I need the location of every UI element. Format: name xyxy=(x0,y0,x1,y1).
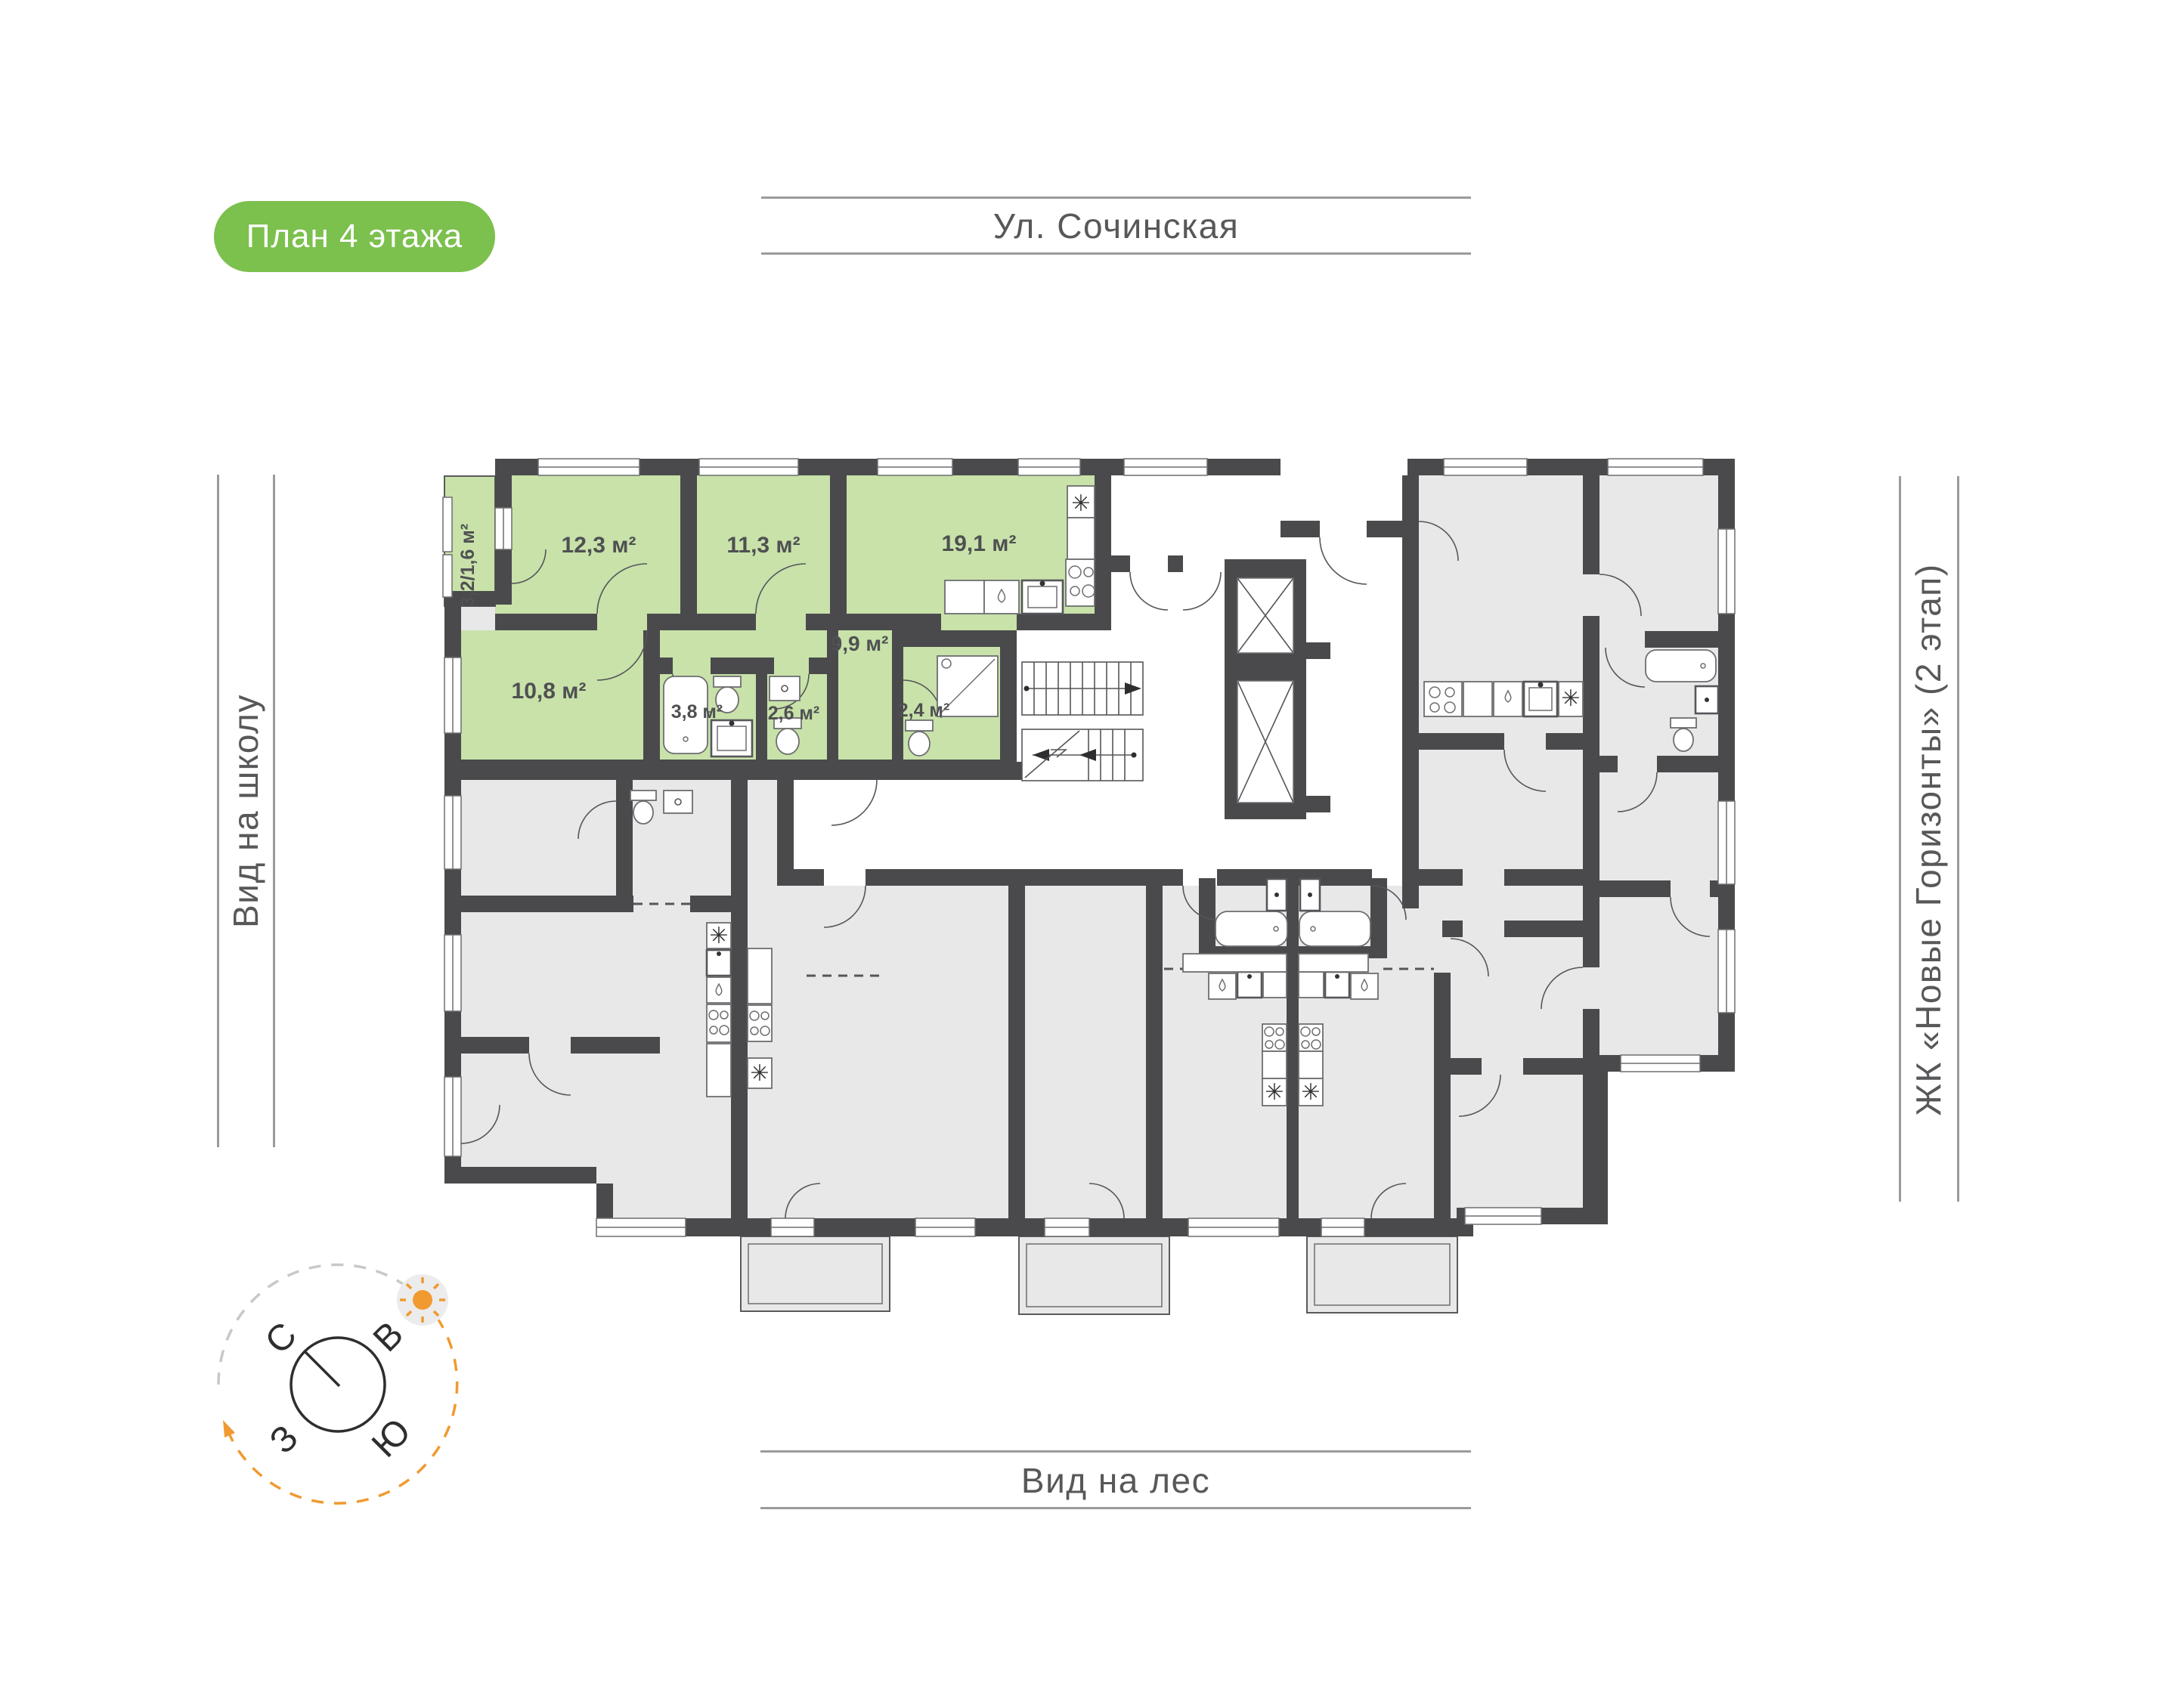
sun-path-arrow xyxy=(223,1420,235,1437)
bathtub-icon xyxy=(1215,911,1287,946)
balconies xyxy=(741,1236,1457,1314)
room-area-label-loggia: 3,2/1,6 м² xyxy=(457,524,478,607)
room-area-label-kitchen-living: 19,1 м² xyxy=(942,531,1017,556)
compass-south: Ю xyxy=(364,1411,419,1465)
elevators xyxy=(1237,578,1293,803)
sink-icon xyxy=(1300,879,1320,911)
kitchen-icons: ✳ xyxy=(1424,682,1583,716)
room-area-label-shower-room: 2,4 м² xyxy=(898,700,950,721)
bathtub-icon xyxy=(1646,650,1716,682)
compass: С В З Ю xyxy=(218,1264,457,1503)
svg-text:✳: ✳ xyxy=(709,923,728,949)
room-area-label-hallway: 9,9 м² xyxy=(831,632,889,655)
sink-icon xyxy=(711,720,752,757)
svg-text:✳: ✳ xyxy=(1561,685,1580,712)
room-area-label-bedroom-1: 12,3 м² xyxy=(562,533,636,558)
sink-icon xyxy=(664,791,692,813)
svg-text:✳: ✳ xyxy=(1301,1079,1320,1106)
toilet-icon xyxy=(906,720,933,756)
floor-plan-page: План 4 этажа Ул. Сочинская Вид на лес Ви… xyxy=(0,0,2177,1708)
svg-text:✳: ✳ xyxy=(1265,1079,1284,1106)
floor-plan-svg: ✳ ✳ xyxy=(0,0,2177,1708)
bathtub-icon xyxy=(1299,911,1370,946)
sun-icon xyxy=(397,1274,448,1326)
room-area-label-bedroom-3: 10,8 м² xyxy=(512,679,587,704)
compass-north: С xyxy=(258,1315,305,1362)
entry-niche xyxy=(1280,459,1407,521)
room-area-label-bathroom: 3,8 м² xyxy=(671,701,723,722)
compass-west: З xyxy=(262,1418,306,1462)
sink-icon xyxy=(1267,879,1287,911)
sink-icon xyxy=(1695,686,1718,713)
svg-text:✳: ✳ xyxy=(1071,490,1090,517)
sink-icon xyxy=(770,676,800,701)
room-area-label-bedroom-2: 11,3 м² xyxy=(726,533,800,558)
svg-text:✳: ✳ xyxy=(750,1060,769,1087)
room-area-label-wc: 2,6 м² xyxy=(768,703,820,724)
